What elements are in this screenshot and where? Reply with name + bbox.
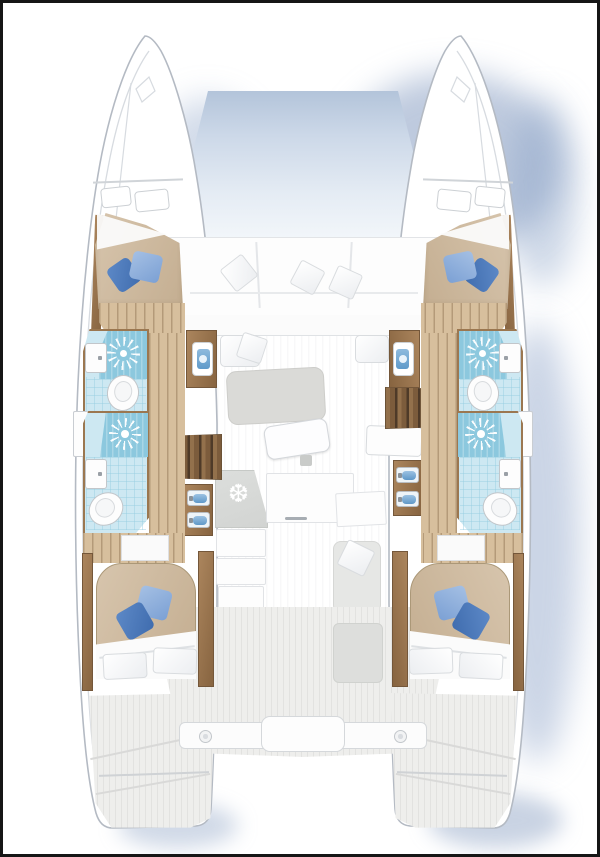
- shower-icon: [466, 337, 499, 370]
- catamaran-floorplan: ❆: [0, 0, 600, 857]
- head-sink: [499, 459, 521, 489]
- hull-aft-deck: [389, 693, 521, 829]
- cabin-wall-line: [423, 178, 513, 183]
- head-sink: [499, 343, 521, 373]
- aft-cabin-rail: [392, 551, 408, 687]
- headboard-panel: [474, 185, 506, 208]
- shower-icon: [465, 418, 497, 450]
- aft-cabin-rail: [513, 553, 524, 691]
- fixture-dot-icon: [399, 355, 407, 363]
- aft-cabin-door: [437, 535, 485, 561]
- starboard-hull-interior: [3, 3, 600, 857]
- cabinet-panel: [393, 342, 414, 376]
- hull-corridor-floor: [421, 333, 457, 563]
- headboard-panel: [436, 188, 472, 212]
- bulkhead-cabinet: [389, 330, 420, 388]
- berth-pillow-white: [409, 647, 454, 675]
- shower-stall: [458, 413, 506, 457]
- berth-pillow-white: [458, 652, 503, 680]
